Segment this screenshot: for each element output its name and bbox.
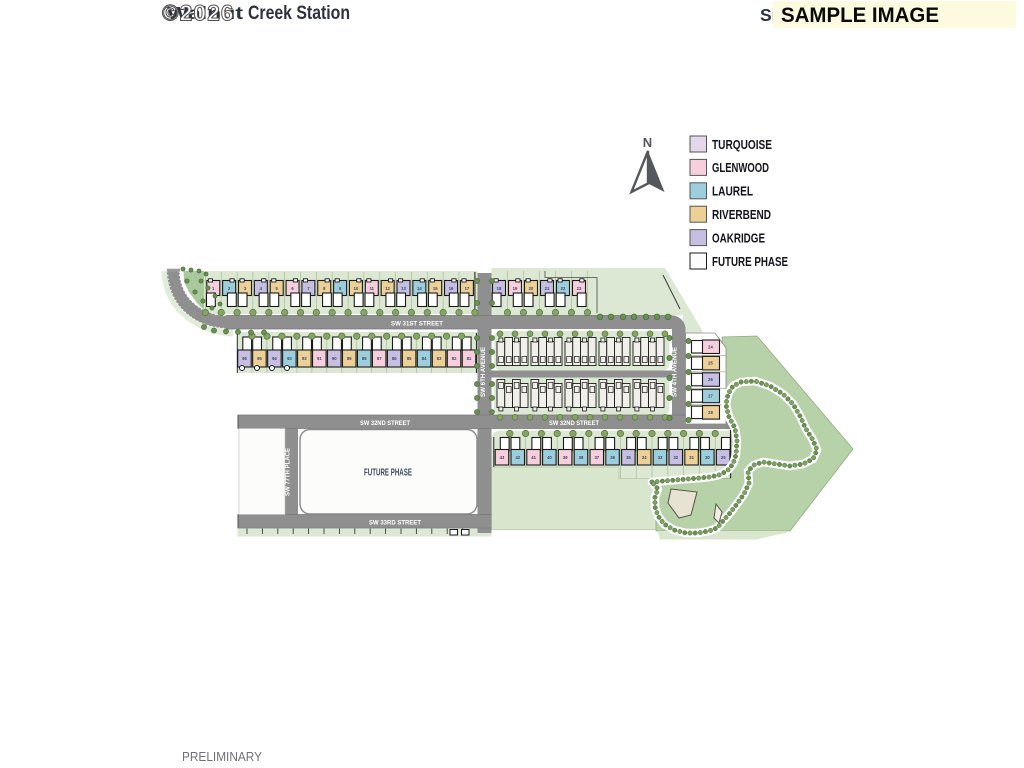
svg-text:SW 32ND STREET: SW 32ND STREET	[360, 420, 411, 427]
svg-text:11: 11	[370, 286, 375, 291]
svg-text:12: 12	[385, 286, 390, 291]
svg-text:17: 17	[465, 286, 470, 291]
svg-text:92: 92	[302, 356, 307, 361]
svg-text:SW 4TH AVENUE: SW 4TH AVENUE	[672, 347, 679, 397]
svg-text:37: 37	[594, 455, 599, 460]
svg-text:SW 33RD STREET: SW 33RD STREET	[369, 519, 422, 526]
svg-text:TURQUOISE: TURQUOISE	[712, 137, 772, 152]
svg-text:33: 33	[658, 455, 663, 460]
svg-text:FUTURE PHASE: FUTURE PHASE	[712, 254, 788, 269]
svg-text:94: 94	[272, 356, 277, 361]
svg-text:81: 81	[467, 356, 472, 361]
svg-text:27: 27	[708, 394, 713, 399]
svg-text:16: 16	[449, 286, 454, 291]
svg-text:32: 32	[673, 455, 678, 460]
svg-text:42: 42	[515, 455, 520, 460]
svg-text:40: 40	[547, 455, 552, 460]
svg-text:FUTURE PHASE: FUTURE PHASE	[364, 468, 412, 479]
svg-text:SW 77TH PLACE: SW 77TH PLACE	[285, 448, 292, 496]
svg-text:23: 23	[577, 286, 582, 291]
svg-text:84: 84	[422, 356, 427, 361]
svg-text:SW 31ST STREET: SW 31ST STREET	[391, 320, 444, 327]
svg-text:34: 34	[642, 455, 647, 460]
svg-text:24: 24	[708, 344, 713, 349]
svg-text:19: 19	[513, 286, 518, 291]
svg-text:26: 26	[708, 377, 713, 382]
svg-text:GLENWOOD: GLENWOOD	[712, 160, 769, 175]
svg-text:PRELIMINARY: PRELIMINARY	[182, 750, 263, 764]
svg-text:96: 96	[242, 356, 247, 361]
svg-text:15: 15	[433, 286, 438, 291]
svg-text:90: 90	[332, 356, 337, 361]
svg-text:SW 32ND STREET: SW 32ND STREET	[549, 420, 600, 427]
svg-text:89: 89	[347, 356, 352, 361]
svg-text:25: 25	[708, 361, 713, 366]
svg-text:29: 29	[721, 455, 726, 460]
svg-text:91: 91	[317, 356, 322, 361]
svg-text:82: 82	[452, 356, 457, 361]
svg-text:10: 10	[354, 286, 359, 291]
svg-text:83: 83	[437, 356, 442, 361]
svg-text:87: 87	[377, 356, 382, 361]
svg-text:13: 13	[401, 286, 406, 291]
svg-text:39: 39	[563, 455, 568, 460]
svg-text:18: 18	[497, 286, 502, 291]
svg-text:88: 88	[362, 356, 367, 361]
svg-text:41: 41	[531, 455, 536, 460]
svg-text:38: 38	[579, 455, 584, 460]
svg-text:OAKRIDGE: OAKRIDGE	[712, 230, 765, 245]
svg-text:Creek Station: Creek Station	[248, 3, 350, 24]
svg-text:31: 31	[689, 455, 694, 460]
svg-text:LAUREL: LAUREL	[712, 184, 753, 199]
svg-text:85: 85	[407, 356, 412, 361]
svg-text:SAMPLE IMAGE: SAMPLE IMAGE	[781, 4, 939, 27]
svg-text:21: 21	[545, 286, 550, 291]
svg-text:86: 86	[392, 356, 397, 361]
svg-text:22: 22	[561, 286, 566, 291]
svg-text:N: N	[643, 135, 652, 150]
svg-text:SW 6TH AVENUE: SW 6TH AVENUE	[480, 347, 487, 397]
svg-text:28: 28	[708, 410, 713, 415]
svg-text:30: 30	[705, 455, 710, 460]
svg-text:93: 93	[287, 356, 292, 361]
svg-text:RIVERBEND: RIVERBEND	[712, 207, 771, 222]
svg-text:14: 14	[417, 286, 422, 291]
svg-text:35: 35	[626, 455, 631, 460]
svg-text:95: 95	[257, 356, 262, 361]
svg-text:©2026: ©2026	[162, 1, 235, 26]
svg-text:43: 43	[500, 455, 505, 460]
svg-text:36: 36	[610, 455, 615, 460]
svg-text:20: 20	[529, 286, 534, 291]
